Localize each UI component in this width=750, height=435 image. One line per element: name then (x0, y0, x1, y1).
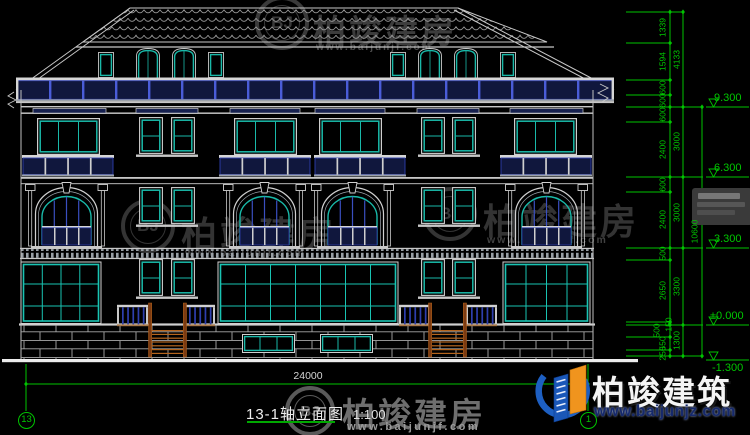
site-logo: 柏竣建筑 www.baijunjz.com (528, 358, 750, 435)
axis-bubble-13: 13 (18, 412, 35, 429)
cad-elevation-screenshot: BJ 柏竣建房 www.baijunjf.com BJ 柏竣建房 www.bai… (0, 0, 750, 435)
logo-url: www.baijunjz.com (594, 403, 736, 421)
dim-subtotal: 3000 (672, 190, 683, 234)
dim-subtotal: 4133 (672, 37, 683, 81)
ground-floor (2, 260, 638, 363)
dim-subtotal: 3300 (672, 264, 683, 308)
watermark-contact-box (692, 188, 750, 225)
second-floor (26, 183, 588, 249)
dim-subtotal: 3000 (672, 120, 683, 164)
level-marker: 6.300 (714, 162, 742, 174)
sunroom-right (503, 262, 590, 324)
terrace-railing (16, 78, 614, 102)
axis-bubble-1: 1 (580, 412, 597, 429)
level-marker: ±0.000 (710, 310, 744, 322)
sunroom-center (218, 262, 398, 324)
level-marker: 9.300 (714, 92, 742, 104)
third-floor (22, 109, 592, 177)
basement-window (321, 335, 373, 353)
dim-subtotal: 1300 (672, 318, 683, 362)
attic-windows (99, 49, 516, 78)
basement-window (243, 335, 295, 353)
drawing-scale: 1:100 (353, 407, 386, 422)
title-underline (247, 421, 335, 423)
dim-total-height: 10600 (690, 209, 701, 253)
base-masonry (21, 326, 593, 359)
level-marker: 3.300 (714, 233, 742, 245)
sunroom-left (21, 262, 101, 324)
dim-total-width: 24000 (283, 370, 333, 382)
